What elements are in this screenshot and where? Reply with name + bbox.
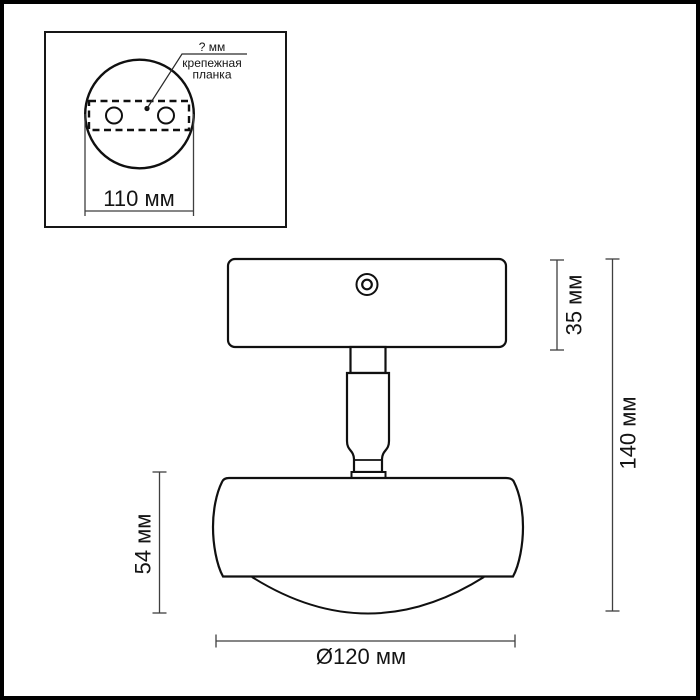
- diffuser-lens-arc: [252, 577, 484, 614]
- screw-hole-left: [106, 108, 122, 124]
- bracket-label-line2: планка: [193, 68, 232, 82]
- screw-hole-right: [158, 108, 174, 124]
- canopy-base: [228, 259, 506, 347]
- stem-collar: [347, 373, 389, 472]
- dimension-head-height: 54 мм: [131, 472, 167, 613]
- head-diameter-value: Ø120 мм: [316, 644, 406, 669]
- dimension-overall-height: 140 мм: [606, 259, 641, 611]
- technical-drawing-page: ? мм крепежная планка 110 мм: [0, 0, 700, 700]
- head-height-value: 54 мм: [131, 514, 156, 575]
- canopy-height-value: 35 мм: [562, 275, 587, 336]
- fixture-side-view: [213, 259, 523, 614]
- fixture-dimension-drawing: ? мм крепежная планка 110 мм: [4, 4, 696, 696]
- plate-width-value: 110 мм: [103, 186, 174, 211]
- lamp-head-drum: [213, 478, 523, 577]
- mounting-plate-inset: ? мм крепежная планка 110 мм: [45, 32, 286, 227]
- canopy-circle: [85, 60, 194, 169]
- screw-inner-circle: [362, 280, 372, 290]
- overall-height-value: 140 мм: [616, 396, 641, 469]
- dimension-canopy-height: 35 мм: [550, 260, 587, 350]
- stem-tube: [351, 347, 386, 373]
- dimension-head-diameter: Ø120 мм: [216, 635, 515, 670]
- hole-pitch-label: ? мм: [199, 40, 226, 54]
